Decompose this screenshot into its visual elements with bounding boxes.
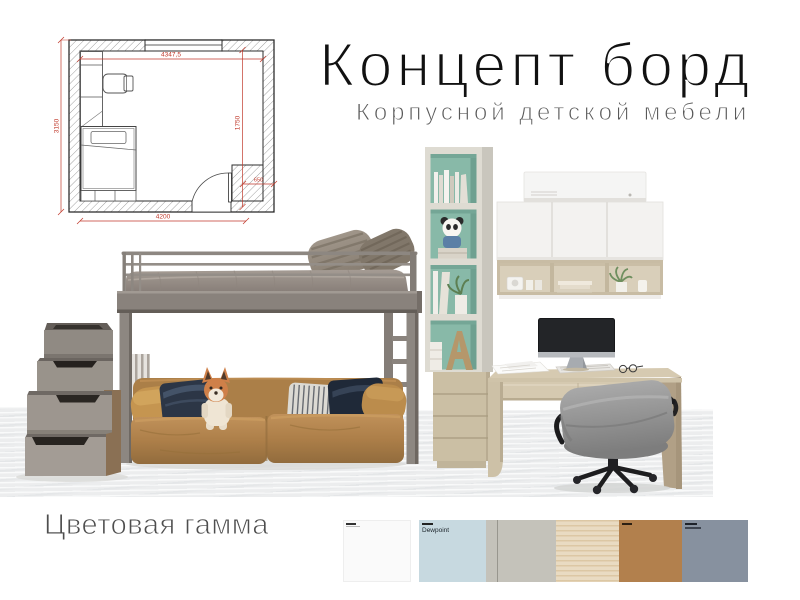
svg-text:1750: 1750 <box>235 115 242 130</box>
svg-text:4347,5: 4347,5 <box>161 52 181 59</box>
svg-text:3150: 3150 <box>54 118 61 133</box>
